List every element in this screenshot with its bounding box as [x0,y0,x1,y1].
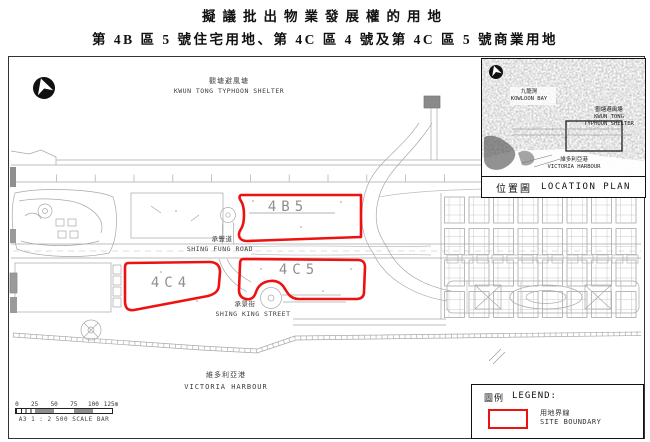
scale-bar-caption: A3 1 : 2 500 SCALE BAR [15,416,113,423]
victoria-harbour-label-en: VICTORIA HARBOUR [184,383,267,391]
legend-box: 圖例 LEGEND: 用地界線 SITE BOUNDARY [471,384,644,439]
title-line-1: 擬議批出物業發展權的用地 [0,5,650,25]
scale-bar-segments [15,408,113,414]
title-line-2: 第 4B 區 5 號住宅用地、第 4C 區 4 號及第 4C 區 5 號商業用地 [0,28,650,48]
inset-kowloon-bay-label: 九龍灣 KOWLOON BAY [511,89,547,103]
shing-fung-road-label-zh: 承豐道 [212,236,233,243]
site-label-4b5: 4B5 [268,199,308,215]
scale-bar-ticks: 0 25 50 75 100 125m [15,401,113,408]
location-plan-inset: 九龍灣 KOWLOON BAY 觀塘避風塘 KWUN TONG TYPHOON … [481,58,646,198]
plan-map-frame: 觀塘避風塘 KWUN TONG TYPHOON SHELTER 承豐道 SHIN… [8,56,645,439]
page-title: 擬議批出物業發展權的用地 第 4B 區 5 號住宅用地、第 4C 區 4 號及第… [0,5,650,48]
typhoon-shelter-label-en: KWUN TONG TYPHOON SHELTER [174,88,284,95]
proposed-sites-plan-page: 擬議批出物業發展權的用地 第 4B 區 5 號住宅用地、第 4C 區 4 號及第… [0,0,650,442]
shing-king-street-label-en: SHING KING STREET [215,311,290,318]
victoria-harbour-label-zh: 維多利亞港 [206,371,246,379]
typhoon-shelter-label-zh: 觀塘避風塘 [209,77,249,85]
legend-heading: 圖例 LEGEND: [484,391,643,404]
legend-item-site-boundary: 用地界線 SITE BOUNDARY [488,409,643,429]
inset-victoria-harbour-label: 維多利亞港 VICTORIA HARBOUR [548,157,601,171]
shing-fung-road-label-en: SHING FUNG ROAD [187,246,253,253]
north-arrow-icon [31,75,57,101]
site-boundary-swatch [488,409,528,429]
shing-king-street-label-zh: 承景街 [235,301,256,308]
inset-typhoon-shelter-label: 觀塘避風塘 KWUN TONG TYPHOON SHELTER [584,107,634,128]
site-label-4c4: 4C4 [151,275,191,291]
scale-bar: 0 25 50 75 100 125m A3 1 : 2 500 SCALE B… [15,401,113,423]
inset-caption: 位置圖 LOCATION PLAN [482,176,645,197]
site-label-4c5: 4C5 [279,262,319,278]
